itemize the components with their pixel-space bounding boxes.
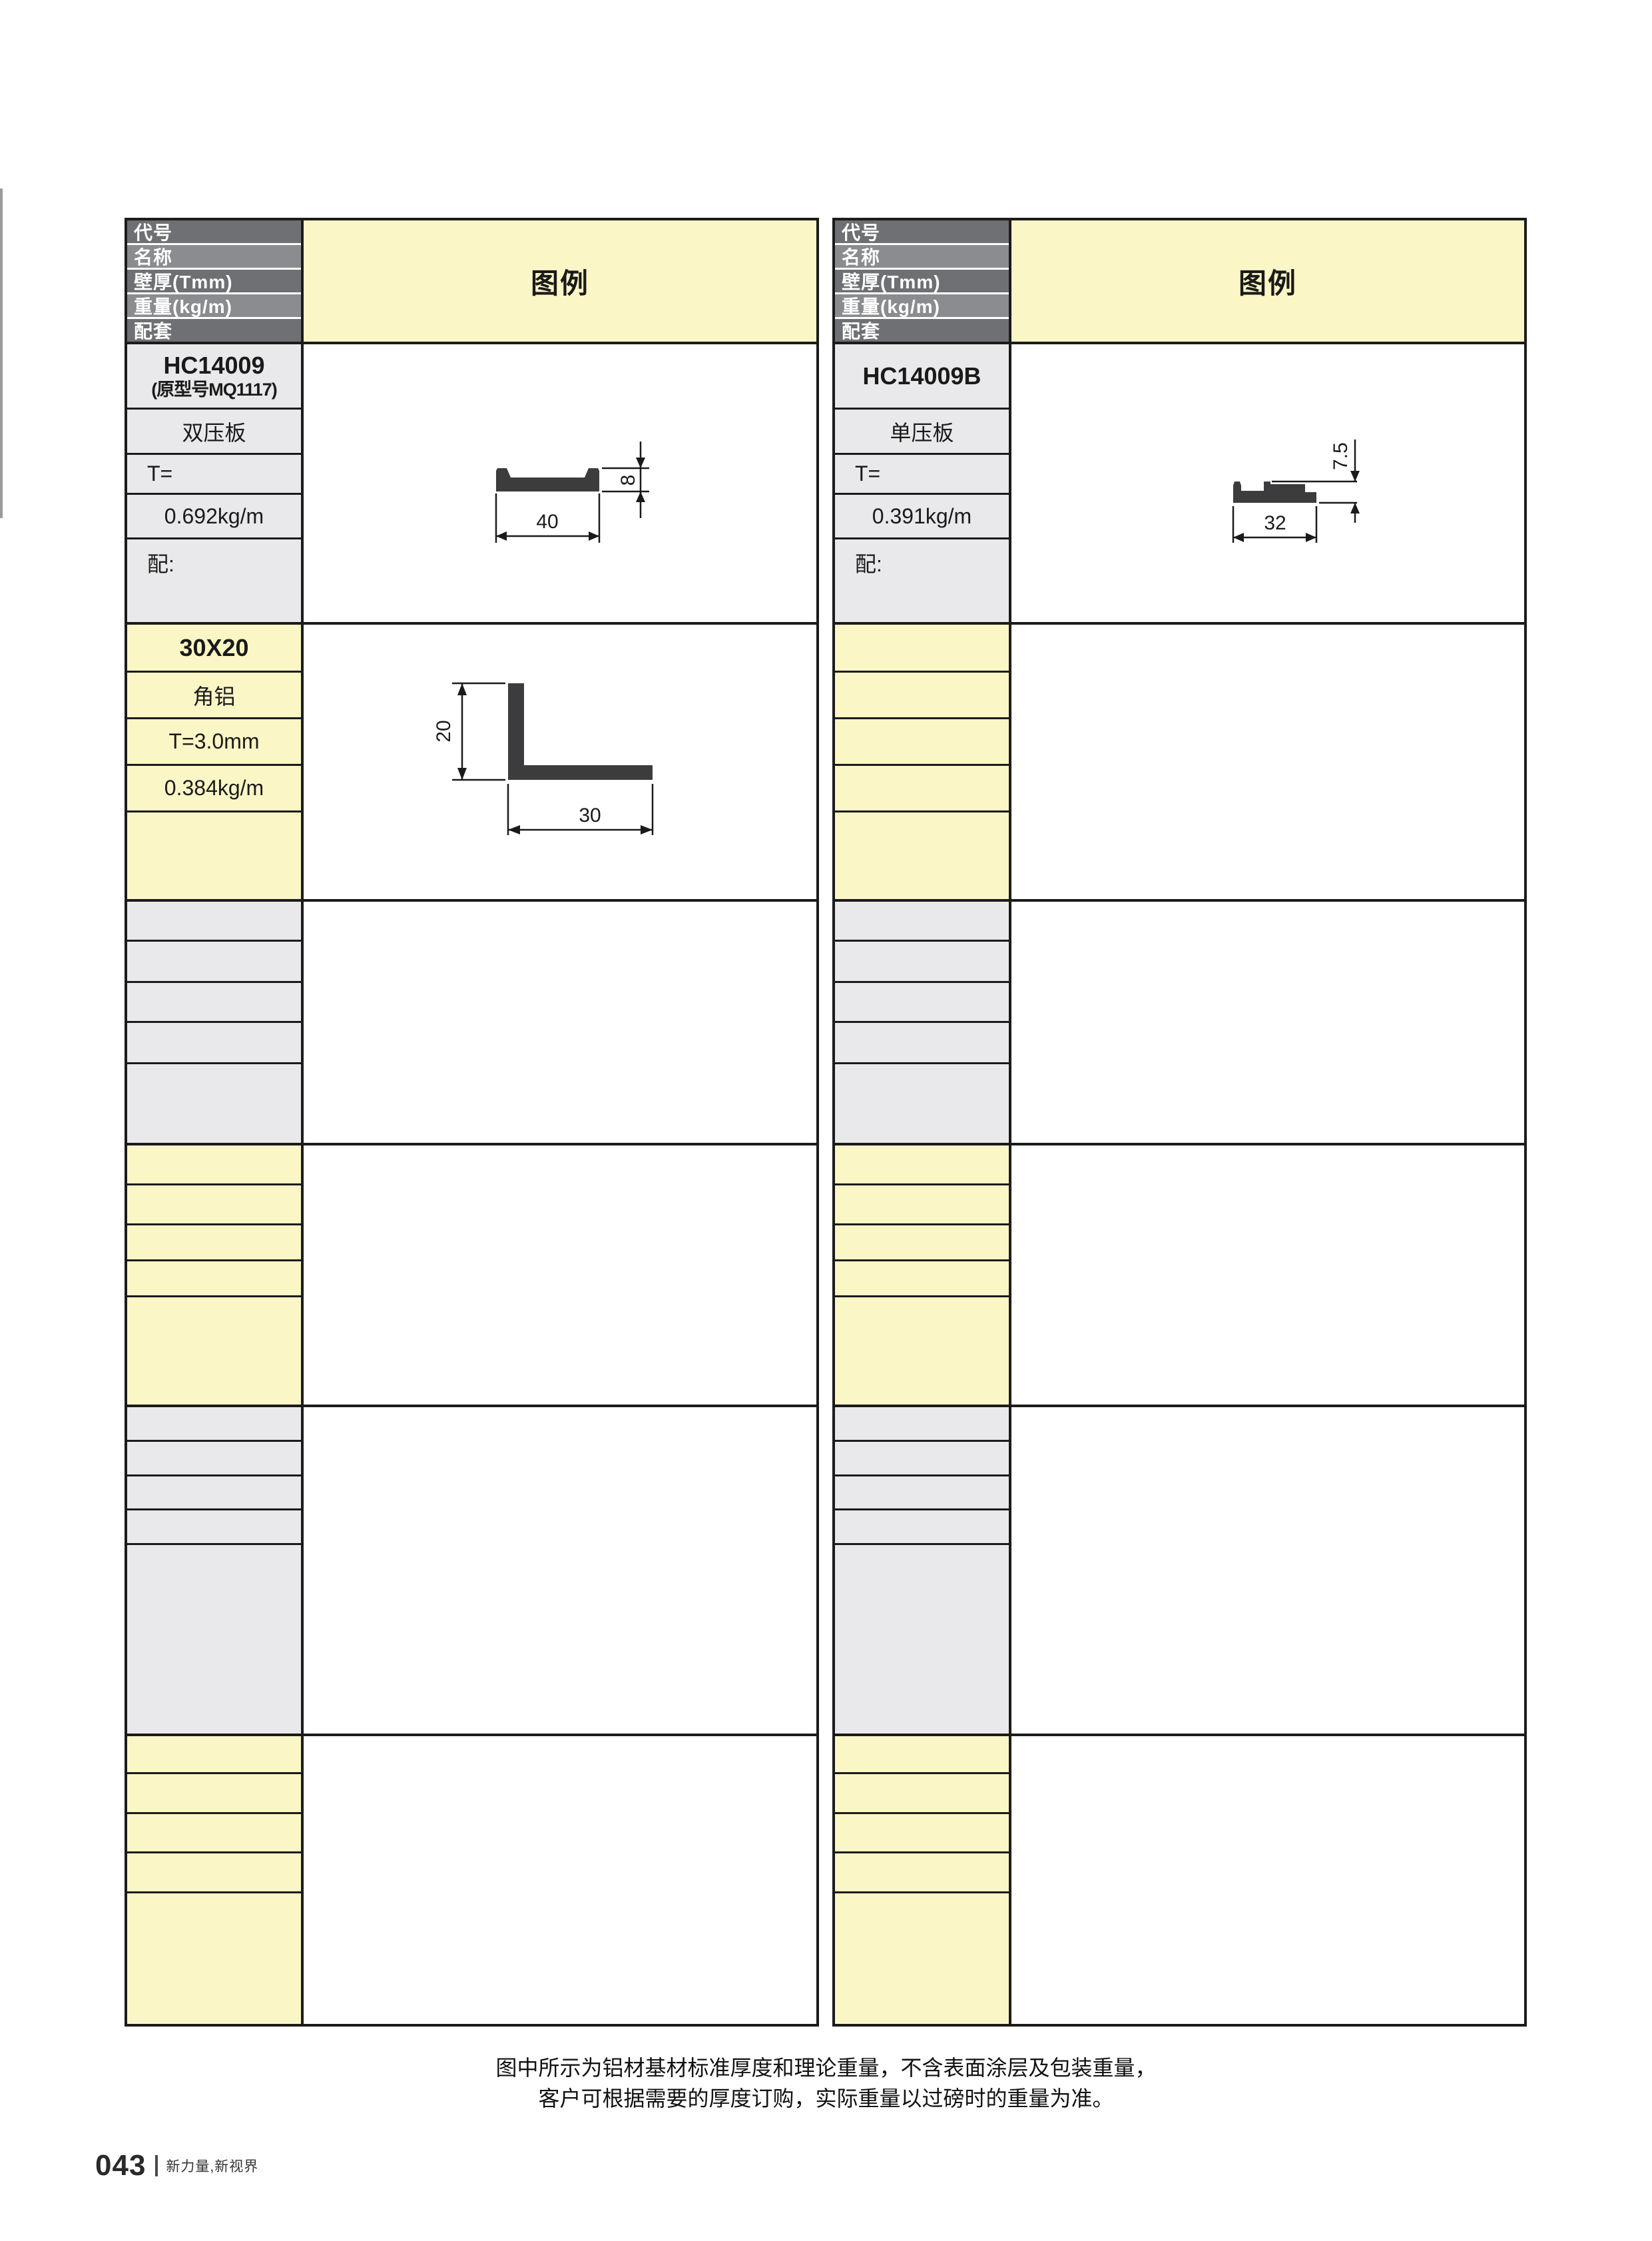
cell-product-match: 配: — [835, 537, 1009, 622]
header-cell-weight: 重量(kg/m) — [127, 292, 301, 317]
legend-cell-empty — [1011, 622, 1524, 899]
legend-cell-empty — [1011, 1405, 1524, 1734]
header-cell-name: 名称 — [127, 243, 301, 268]
footer-note-line2: 客户可根据需要的厚度订购，实际重量以过磅时的重量为准。 — [0, 2083, 1652, 2114]
cell-product-weight: 0.384kg/m — [127, 764, 301, 810]
empty-cell — [835, 1407, 1009, 1440]
empty-cell — [835, 717, 1009, 764]
legend-cell-empty — [1011, 1734, 1524, 2024]
cell-product-code: 30X20 — [127, 625, 301, 671]
left-product-table: 代号 名称 壁厚(Tmm) 重量(kg/m) 配套 HC14009 (原型号MQ… — [125, 218, 819, 2027]
legend-header: 图例 — [304, 220, 816, 342]
profile-drawing-hc14009: 40 8 — [304, 344, 816, 622]
legend-cell-30x20: 20 30 — [304, 622, 816, 899]
empty-cell — [127, 1508, 301, 1543]
empty-cell — [127, 1145, 301, 1183]
dimension-width-label: 32 — [1264, 512, 1286, 534]
left-block-5 — [127, 1405, 301, 1734]
empty-cell — [835, 1440, 1009, 1474]
legend-cell-empty — [304, 899, 816, 1143]
empty-cell — [127, 1223, 301, 1259]
page-footer: 043 新力量,新视界 — [95, 2149, 258, 2182]
empty-cell — [835, 625, 1009, 671]
cell-product-thickness: T= — [835, 453, 1009, 493]
footer-note-line1: 图中所示为铝材基材标准厚度和理论重量，不含表面涂层及包装重量， — [0, 2053, 1652, 2083]
right-block-4 — [835, 1143, 1009, 1405]
left-block-2: 30X20 角铝 T=3.0mm 0.384kg/m — [127, 622, 301, 899]
cell-product-weight: 0.692kg/m — [127, 493, 301, 537]
right-spec-column: 代号 名称 壁厚(Tmm) 重量(kg/m) 配套 HC14009B 单压板 T… — [835, 220, 1011, 2024]
cell-product-match — [127, 810, 301, 899]
header-cell-name: 名称 — [835, 243, 1009, 268]
legend-cell-empty — [304, 1405, 816, 1734]
left-block-4 — [127, 1143, 301, 1405]
footer-note: 图中所示为铝材基材标准厚度和理论重量，不含表面涂层及包装重量， 客户可根据需要的… — [0, 2053, 1652, 2114]
header-cell-thickness: 壁厚(Tmm) — [127, 268, 301, 292]
empty-cell — [127, 1021, 301, 1062]
product-code-note: (原型号MQ1117) — [151, 380, 277, 400]
cell-product-match: 配: — [127, 537, 301, 622]
catalog-page: 代号 名称 壁厚(Tmm) 重量(kg/m) 配套 HC14009 (原型号MQ… — [0, 0, 1652, 2241]
footer-slogan: 新力量,新视界 — [166, 2156, 258, 2176]
right-block-3 — [835, 899, 1009, 1143]
header-cell-thickness: 壁厚(Tmm) — [835, 268, 1009, 292]
right-legend-column: 图例 7.5 32 — [1011, 220, 1524, 2024]
legend-cell-empty — [1011, 899, 1524, 1143]
left-block-3 — [127, 899, 301, 1143]
empty-cell — [835, 1812, 1009, 1851]
footer-divider — [155, 2155, 158, 2176]
empty-cell — [835, 810, 1009, 899]
empty-cell — [127, 1736, 301, 1772]
empty-cell — [835, 1145, 1009, 1183]
product-code: HC14009 — [163, 352, 264, 379]
cell-product-code: HC14009B — [835, 344, 1009, 408]
left-edge-bar — [0, 188, 3, 518]
header-cell-match: 配套 — [835, 317, 1009, 342]
cell-product-code: HC14009 (原型号MQ1117) — [127, 344, 301, 408]
empty-cell — [835, 1259, 1009, 1295]
empty-cell — [127, 1259, 301, 1295]
cell-product-name: 单压板 — [835, 408, 1009, 453]
right-block-2 — [835, 622, 1009, 899]
empty-cell — [835, 940, 1009, 981]
header-cell-code: 代号 — [127, 220, 301, 243]
empty-cell — [127, 902, 301, 940]
empty-cell — [127, 1543, 301, 1734]
right-block-5 — [835, 1405, 1009, 1734]
legend-cell-hc14009b: 7.5 32 — [1011, 342, 1524, 622]
empty-cell — [127, 1407, 301, 1440]
empty-cell — [835, 671, 1009, 717]
cell-product-thickness: T= — [127, 453, 301, 493]
empty-cell — [127, 1474, 301, 1508]
dimension-height-label: 20 — [433, 720, 455, 742]
empty-cell — [835, 1223, 1009, 1259]
profile-drawing-30x20-angle: 20 30 — [304, 625, 816, 899]
page-number: 043 — [95, 2149, 146, 2182]
empty-cell — [835, 1508, 1009, 1543]
empty-cell — [127, 981, 301, 1021]
empty-cell — [835, 1295, 1009, 1405]
empty-cell — [835, 764, 1009, 810]
empty-cell — [835, 981, 1009, 1021]
dimension-height-label: 8 — [617, 475, 639, 486]
legend-cell-empty — [304, 1143, 816, 1405]
empty-cell — [835, 902, 1009, 940]
angle-horizontal-leg — [508, 765, 653, 780]
dimension-height-label: 7.5 — [1330, 442, 1352, 470]
empty-cell — [127, 1183, 301, 1223]
dimension-width-label: 40 — [536, 511, 558, 533]
empty-cell — [127, 1295, 301, 1405]
profile-drawing-hc14009b: 7.5 32 — [1011, 344, 1524, 622]
right-block-1: HC14009B 单压板 T= 0.391kg/m 配: — [835, 342, 1009, 622]
empty-cell — [835, 1772, 1009, 1812]
empty-cell — [835, 1062, 1009, 1143]
right-block-6 — [835, 1734, 1009, 2024]
legend-cell-empty — [1011, 1143, 1524, 1405]
header-cell-weight: 重量(kg/m) — [835, 292, 1009, 317]
legend-cell-empty — [304, 1734, 816, 2024]
empty-cell — [835, 1021, 1009, 1062]
legend-header: 图例 — [1011, 220, 1524, 342]
left-legend-column: 图例 40 8 — [304, 220, 816, 2024]
dimension-width-label: 30 — [579, 804, 601, 826]
empty-cell — [127, 1062, 301, 1143]
left-spec-column: 代号 名称 壁厚(Tmm) 重量(kg/m) 配套 HC14009 (原型号MQ… — [127, 220, 304, 2024]
profile-cross-section — [496, 468, 599, 491]
cell-product-name: 角铝 — [127, 671, 301, 717]
cell-product-weight: 0.391kg/m — [835, 493, 1009, 537]
header-cell-code: 代号 — [835, 220, 1009, 243]
left-block-6 — [127, 1734, 301, 2024]
right-product-table: 代号 名称 壁厚(Tmm) 重量(kg/m) 配套 HC14009B 单压板 T… — [832, 218, 1527, 2027]
empty-cell — [127, 940, 301, 981]
legend-cell-hc14009: 40 8 — [304, 342, 816, 622]
header-cell-match: 配套 — [127, 317, 301, 342]
empty-cell — [835, 1543, 1009, 1734]
cell-product-thickness: T=3.0mm — [127, 717, 301, 764]
left-block-1: HC14009 (原型号MQ1117) 双压板 T= 0.692kg/m 配: — [127, 342, 301, 622]
empty-cell — [835, 1736, 1009, 1772]
empty-cell — [127, 1440, 301, 1474]
empty-cell — [835, 1891, 1009, 2024]
empty-cell — [835, 1183, 1009, 1223]
empty-cell — [835, 1474, 1009, 1508]
profile-cross-section — [1233, 481, 1316, 503]
empty-cell — [127, 1772, 301, 1812]
empty-cell — [127, 1851, 301, 1891]
empty-cell — [835, 1851, 1009, 1891]
empty-cell — [127, 1891, 301, 2024]
empty-cell — [127, 1812, 301, 1851]
cell-product-name: 双压板 — [127, 408, 301, 453]
